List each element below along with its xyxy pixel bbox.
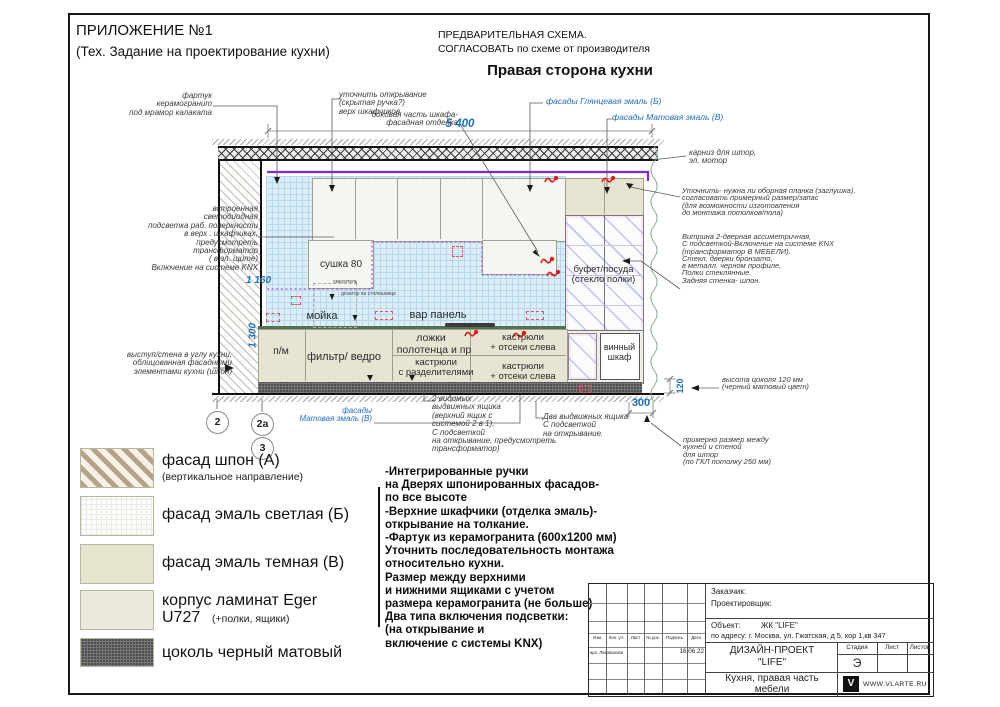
legend-label-veneer: фасад шпон (А): [162, 452, 280, 469]
axis-marker-2a: 2a: [251, 413, 274, 436]
tb-stage-label: Стадия: [837, 644, 877, 651]
rev-col-date: Дата: [687, 635, 705, 640]
label-pots-dividers: кастрюли с разделителями: [396, 358, 476, 378]
legend-label-enamel-dark: фасад эмаль темная (В): [162, 554, 344, 571]
dim-wall-gap: 300: [627, 397, 655, 409]
title-block: Изм. Кол. уч. Лист № док. Подпись Дата а…: [588, 583, 934, 697]
tb-sheet-label: Лист: [877, 644, 907, 651]
tb-line: [705, 618, 933, 619]
tb-designer: Проектировщик:: [711, 599, 772, 608]
dim-counter-height: 1 300: [248, 315, 259, 357]
label-pots-left-2: кастрюли + отсеки слева: [483, 362, 563, 382]
label-mixer: смеситель: [333, 279, 357, 285]
tb-stage-value: Э: [837, 656, 877, 670]
tb-customer: Заказчик:: [711, 587, 746, 596]
tb-sheets-label: Листов: [907, 644, 933, 651]
legend-swatch-enamel-dark: [80, 544, 154, 584]
rev-col-list: Лист: [627, 635, 644, 640]
ann-cornice: карниз для штор, эл. мотор: [689, 149, 756, 166]
label-spoons: ложки: [406, 333, 456, 344]
tb-line: [705, 642, 933, 643]
label-filter-bin: фильтр/ ведро: [300, 352, 388, 363]
ann-wall-ledge: выступ/стена в углу кухни, облицованная …: [94, 351, 232, 376]
handle-mark-icons: [465, 176, 615, 337]
legend-swatch-plinth: [80, 638, 154, 667]
drawing-sheet: ПРИЛОЖЕНИЕ №1 (Тех. Задание на проектиро…: [0, 0, 1000, 707]
label-buffet: буфет/посуда (стекло полки): [566, 265, 641, 285]
ann-filler-plank: Уточнить- нужна ли оборная планка (заглу…: [682, 187, 855, 216]
ann-curtain-gap: примерно размер между кухней и стеной дл…: [683, 436, 771, 465]
arrow-icons: [225, 177, 699, 422]
ann-side-panel: боковая часть шкафа- фасадная отделка: [342, 111, 458, 128]
legend-divider: [378, 487, 380, 627]
axis-marker-2: 2: [206, 411, 229, 434]
dim-backsplash: 1 160: [246, 275, 271, 286]
label-sink: мойка: [297, 311, 347, 322]
rev-col-izm: Изм.: [589, 635, 606, 640]
ann-two-drawers: Два выдвижных ящика С подсветкой на откр…: [543, 413, 628, 438]
rev-col-kol: Кол. уч.: [606, 635, 627, 640]
tb-site: WWW.VLARTE.RU: [863, 681, 927, 688]
ann-matte-fronts-top: фасады Матовая эмаль (В): [612, 113, 723, 121]
break-line: [651, 146, 657, 402]
legend-swatch-enamel-light: [80, 496, 154, 536]
tb-object-value: ЖК "LIFE": [761, 621, 798, 630]
legend-swatch-veneer: [80, 448, 154, 488]
rev-col-doc: № док.: [644, 635, 662, 640]
dim-plinth-height: 120: [675, 365, 685, 407]
legend-sub-veneer: (вертикальное направление): [162, 471, 303, 483]
ann-plinth-height: высота цоколя 120 мм (черный матовый цве…: [722, 376, 809, 391]
rev-author: арх. Лихованова: [590, 650, 623, 655]
legend-label-enamel-light: фасад эмаль светлая (Б): [162, 506, 349, 523]
tb-sheet-title: Кухня, правая часть мебели: [707, 674, 837, 695]
legend-swatch-laminate: [80, 590, 154, 630]
label-dispenser: дозатор на столешнице: [341, 291, 396, 297]
label-towels: полотенца и пр: [394, 345, 474, 356]
label-dishwasher: п/м: [266, 346, 296, 357]
tb-object-label: Объект:: [711, 621, 740, 630]
ann-two-visible-drawers: 2 видимых выдвижных ящика (верхний ящик …: [432, 395, 556, 454]
label-pots-left: кастрюли + отсеки слева: [483, 333, 563, 353]
ann-matte-fronts-bottom: фасады Матовая эмаль (В): [282, 407, 372, 424]
label-dryer: сушка 80: [310, 259, 372, 270]
ann-led-lighting: встроенная светодиодная подсветка раб. п…: [106, 205, 258, 272]
legend-label-plinth: цоколь черный матовый: [162, 644, 342, 661]
tb-line: [837, 654, 933, 655]
curtain-cornice-line: [267, 172, 648, 181]
legend-sub-laminate: (+полки, ящики): [212, 613, 290, 625]
tb-address: по адресу: г. Москва, ул. Гжатская, д 5,…: [711, 631, 886, 640]
tb-project-name: ДИЗАЙН-ПРОЕКТ "LIFE": [707, 645, 837, 668]
label-hob: вар панель: [408, 310, 468, 321]
rev-col-sign: Подпись: [662, 635, 687, 640]
rev-date-value: 16.06.22: [677, 648, 704, 655]
ann-gloss-fronts: фасады Глянцевая эмаль (Б): [546, 97, 661, 105]
ann-vitrine: Витрина 2-дверная ассиметричная, С подсв…: [682, 233, 834, 284]
ann-backsplash: фартук керамогранит под мрамор калаката: [90, 92, 212, 117]
label-wine: винный шкаф: [601, 343, 638, 362]
vlarte-logo: V: [843, 676, 859, 692]
